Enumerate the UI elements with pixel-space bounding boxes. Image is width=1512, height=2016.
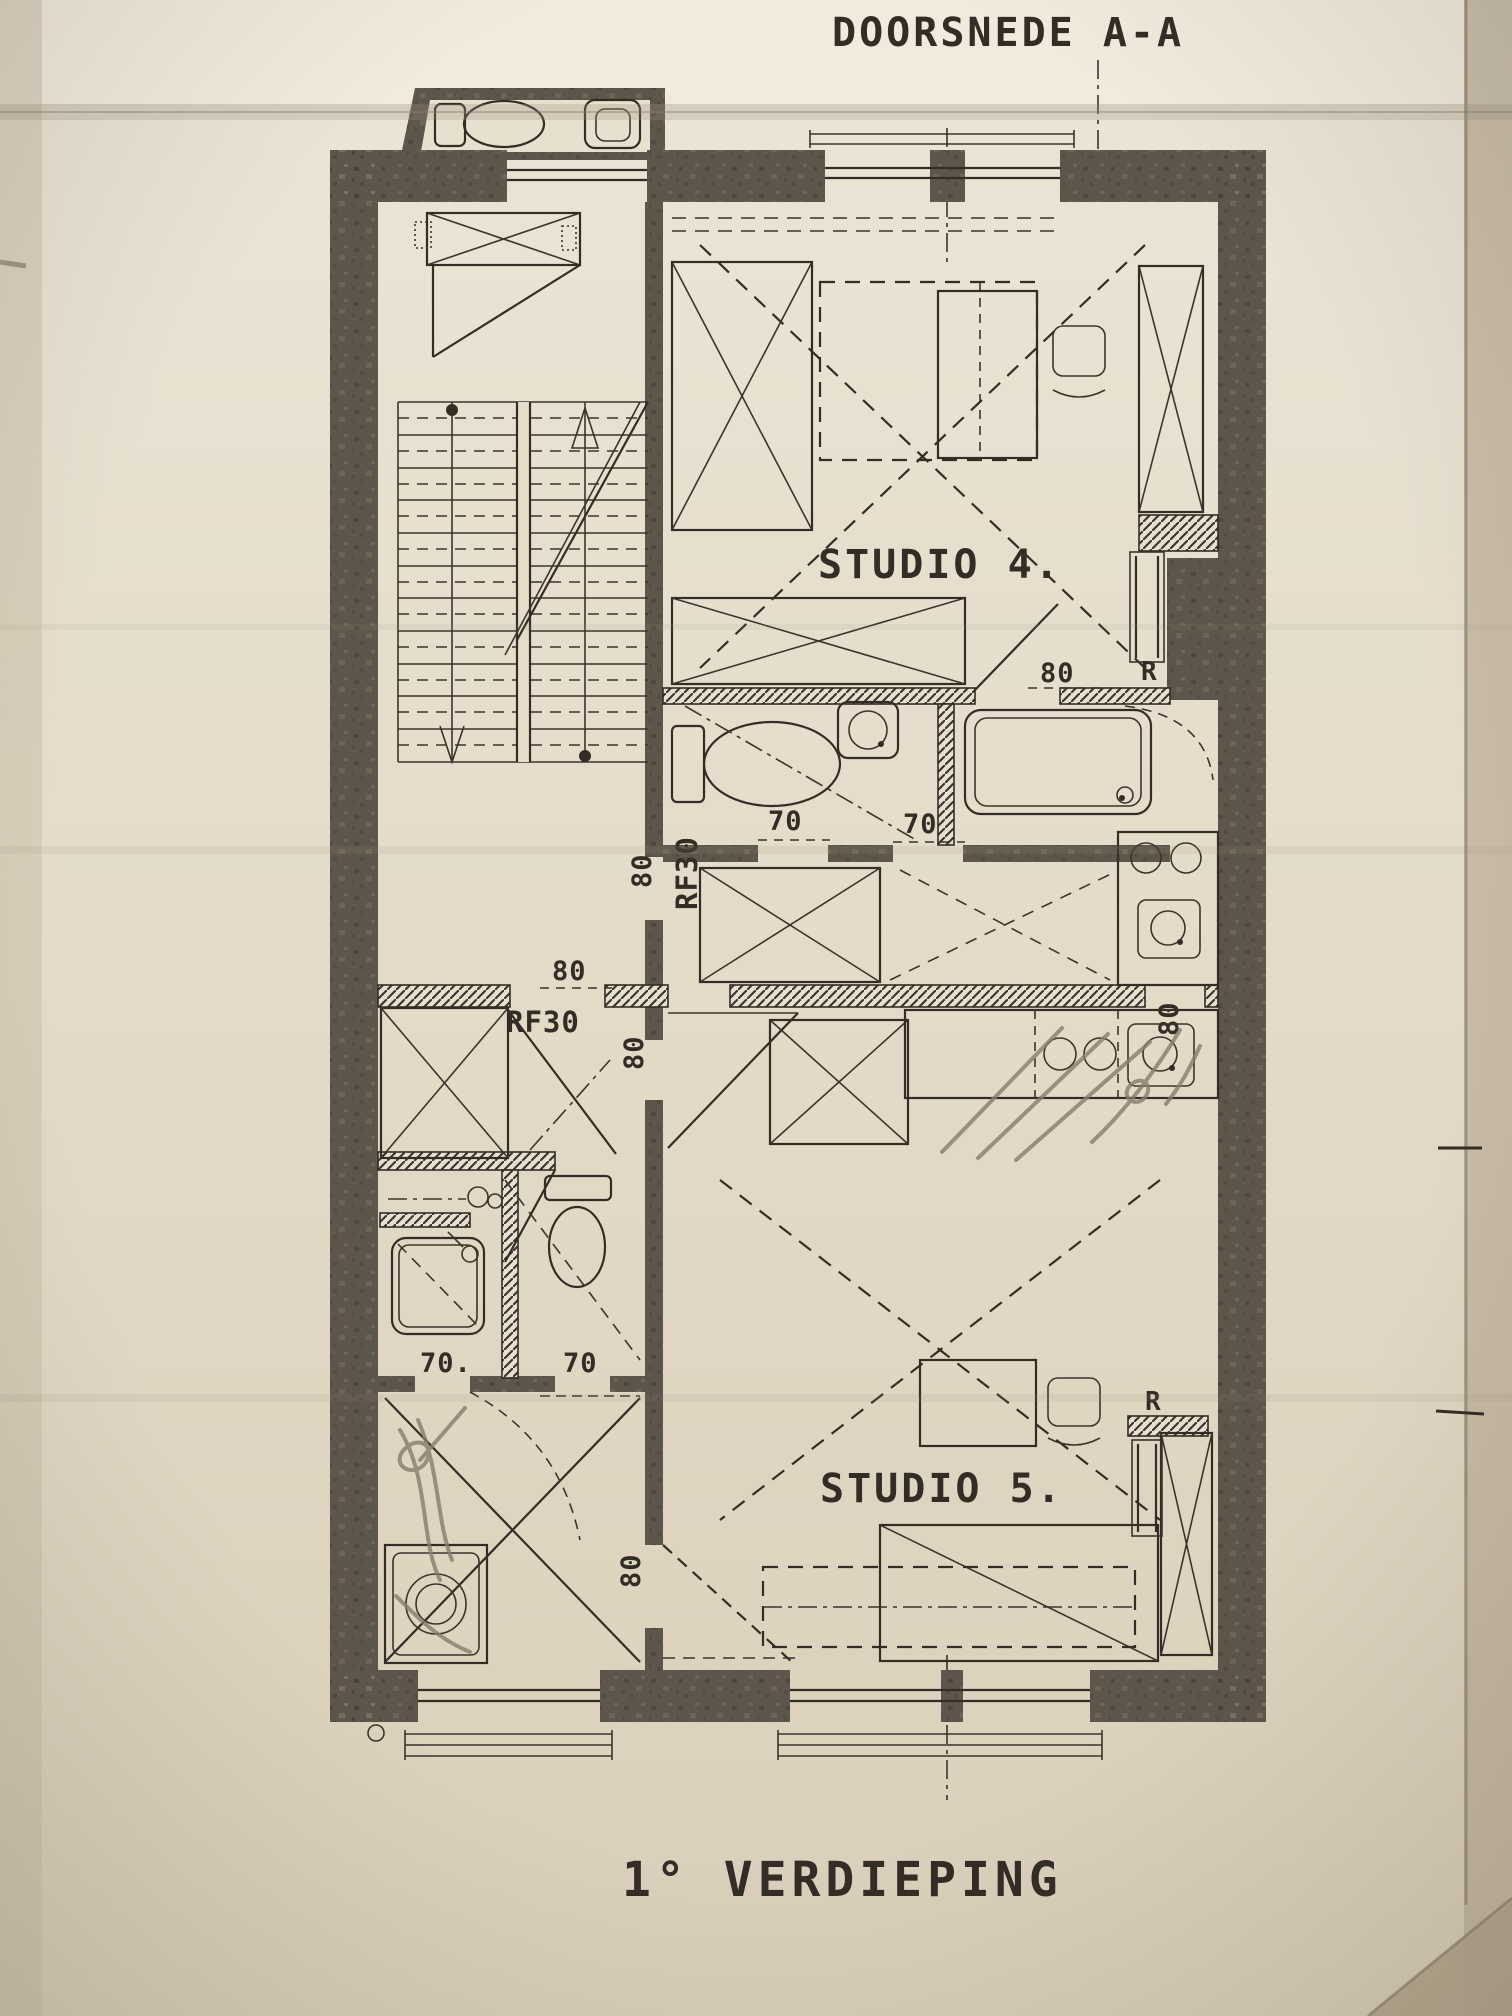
floor-plan-photo: DOORSNEDE A-A	[0, 0, 1512, 2016]
floor-plan-drawing: DOORSNEDE A-A	[0, 0, 1512, 2016]
photo-vignette	[0, 0, 1512, 2016]
